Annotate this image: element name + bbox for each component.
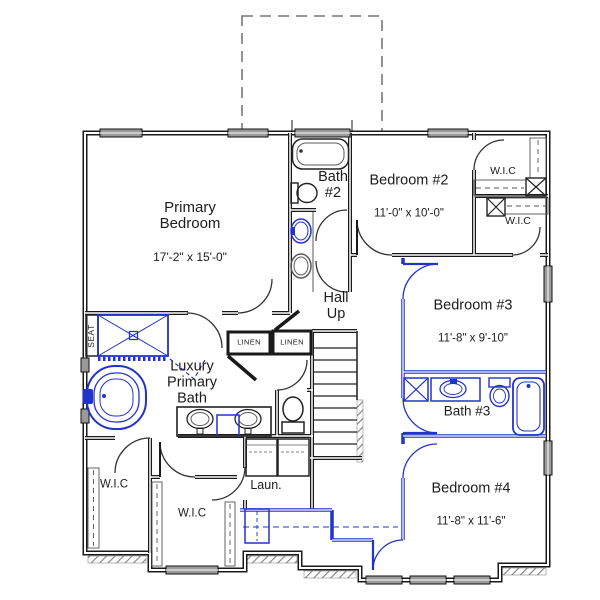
double-vanity-icon — [177, 407, 271, 436]
toilet-icon — [489, 378, 510, 407]
vanity-sink-icon — [431, 378, 480, 401]
optional-walls — [240, 258, 546, 540]
linen-closets — [228, 311, 311, 380]
staircase — [314, 348, 357, 444]
toilet-icon — [282, 397, 304, 433]
bathtub-icon — [513, 378, 544, 435]
sink-icon — [291, 254, 311, 278]
sink-icon — [291, 219, 311, 243]
floor-plan: Primary Bedroom 17'-2" x 15'-0" Bath #2 … — [0, 0, 600, 600]
optional-door-swings — [373, 264, 438, 570]
laundry-appliances — [246, 439, 309, 476]
bath2-fixtures — [291, 139, 349, 292]
washer-icon — [246, 439, 277, 476]
closet-cabinet — [245, 509, 269, 543]
closet-shelving — [88, 138, 548, 566]
floor-plan-drawing — [0, 0, 600, 600]
shower-icon — [86, 315, 205, 379]
bath3-fixtures — [404, 378, 544, 435]
roof-outline — [242, 16, 382, 133]
dryer-icon — [278, 439, 309, 476]
toilet-icon — [291, 183, 317, 203]
freestanding-tub-icon — [83, 366, 146, 429]
